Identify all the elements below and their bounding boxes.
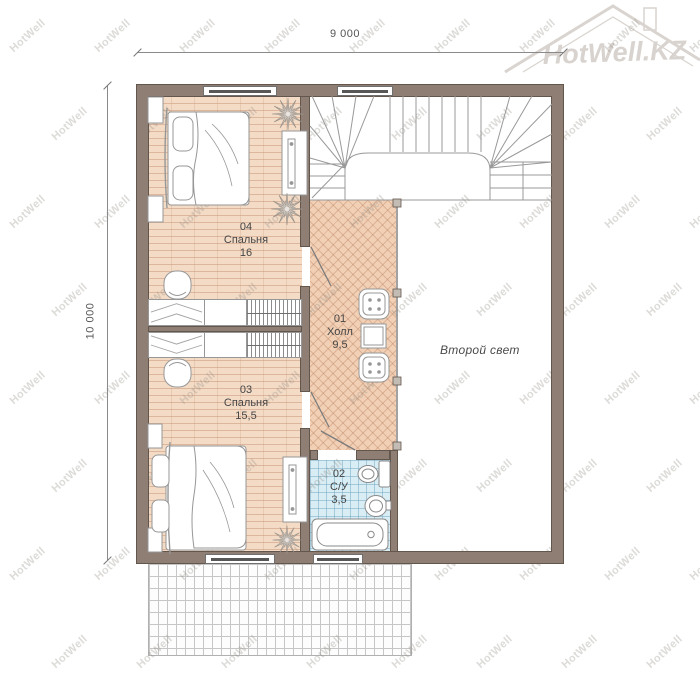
room-area: 16 [204,247,288,260]
partition-wall-bathroom-top [356,450,390,460]
dimension-label-width: 9 000 [330,28,360,40]
watermark-text: HotWell [8,545,48,583]
wardrobe-row-bedroom04 [148,299,302,326]
watermark-text: HotWell [93,17,133,55]
room-label-bedroom-03: 03 Спальня 15,5 [204,384,288,423]
terrace-roof [148,563,412,656]
dimension-label-height: 10 000 [84,303,96,340]
closet-shelf-unit [205,300,247,325]
watermark-text: HotWell [93,545,133,583]
watermark-text: HotWell [50,633,90,671]
room-number: 03 [204,384,288,397]
window-frame [317,558,358,561]
room-label-bathroom: 02 С/У 3,5 [297,468,381,507]
partition-wall-bathroom-right [390,450,398,552]
watermark-text: HotWell [560,457,600,495]
room-area: 9,5 [298,339,382,352]
wardrobe-row-bedroom03 [148,332,302,358]
watermark-text: HotWell [688,545,700,583]
watermark-text: HotWell [645,457,685,495]
watermark-text: HotWell [603,193,643,231]
window-frame [342,90,388,93]
dresser-unit [149,300,205,325]
watermark-text: HotWell [645,105,685,143]
watermark-text: HotWell [8,17,48,55]
watermark-text: HotWell [560,633,600,671]
room-label-hall: 01 Холл 9,5 [298,313,382,352]
closet-shelf-unit [205,333,247,357]
watermark-text: HotWell [8,193,48,231]
watermark-text: HotWell [688,369,700,407]
watermark-text: HotWell [645,633,685,671]
window-bathroom [313,554,363,564]
dimension-line-left [107,85,108,560]
closet-hanging-unit [247,300,301,325]
watermark-text: HotWell [603,545,643,583]
room-number: 04 [204,221,288,234]
watermark-text: HotWell [645,281,685,319]
watermark-text: HotWell [178,17,218,55]
watermark-text: HotWell [50,105,90,143]
watermark-text: HotWell [433,17,473,55]
watermark-text: HotWell [8,369,48,407]
brand-logo: HotWell.KZ [495,0,700,85]
watermark-text: HotWell [93,193,133,231]
floor-plan-canvas: HotWell.KZ HotWellHotWellHotWellHotWellH… [0,0,700,677]
watermark-text: HotWell [50,457,90,495]
window-stairwell [337,86,393,96]
room-name: С/У [297,481,381,494]
second-light-label: Второй свет [440,343,520,357]
room-area: 3,5 [297,494,381,507]
room-number: 01 [298,313,382,326]
window-bedroom04 [203,86,277,96]
dimension-line-top [137,52,563,53]
room-area: 15,5 [204,410,288,423]
window-frame [211,558,269,561]
room-name: Спальня [204,397,288,410]
watermark-text: HotWell [688,193,700,231]
watermark-text: HotWell [263,17,303,55]
room-name: Спальня [204,234,288,247]
room-label-bedroom-04: 04 Спальня 16 [204,221,288,260]
watermark-text: HotWell [560,105,600,143]
partition-wall-bedroom04-hall [300,96,310,247]
partition-wall-bathroom-top-stub [310,450,318,460]
watermark-text: HotWell [560,281,600,319]
watermark-text: HotWell [475,633,515,671]
room-name: Холл [298,326,382,339]
dresser-unit [149,333,205,357]
room-number: 02 [297,468,381,481]
window-bedroom03 [205,554,275,564]
watermark-text: HotWell [93,369,133,407]
watermark-text: HotWell [603,369,643,407]
closet-hanging-unit [247,333,301,357]
window-frame [209,90,271,93]
